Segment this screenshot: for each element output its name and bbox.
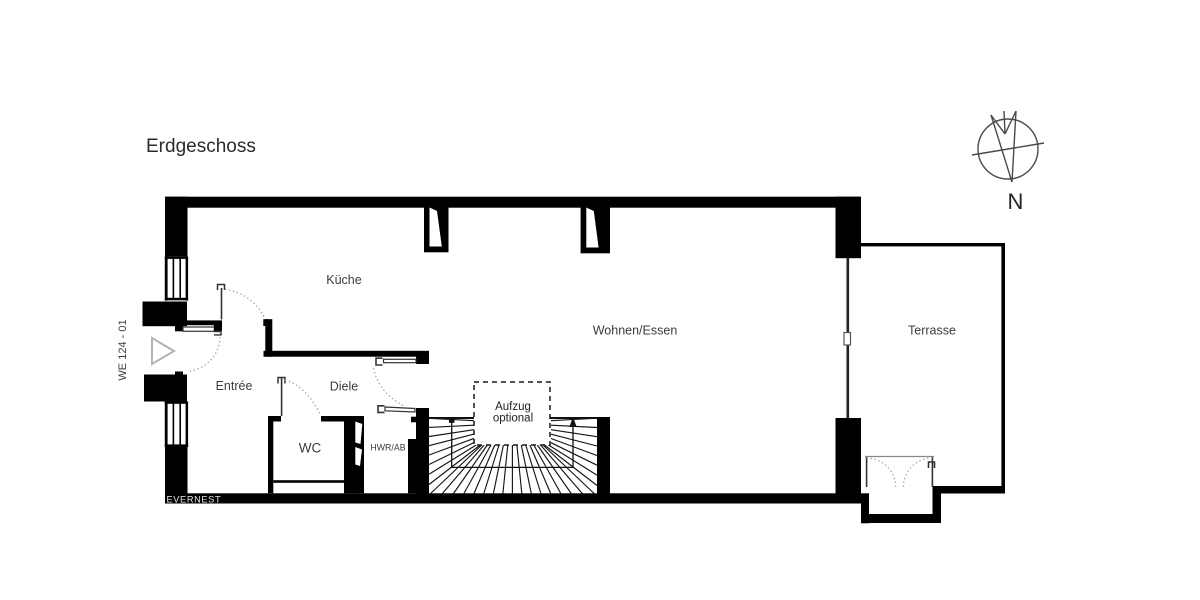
svg-text:WE 124 - 01: WE 124 - 01 (117, 319, 129, 380)
svg-text:optional: optional (493, 413, 533, 425)
svg-text:Entrée: Entrée (216, 379, 253, 393)
svg-text:HWR/AB: HWR/AB (370, 443, 405, 453)
svg-text:EVERNEST: EVERNEST (167, 494, 222, 504)
svg-text:WC: WC (299, 441, 322, 456)
svg-text:Wohnen/Essen: Wohnen/Essen (593, 324, 678, 338)
svg-text:Küche: Küche (326, 273, 361, 287)
svg-text:Aufzug: Aufzug (495, 401, 531, 413)
svg-text:N: N (1008, 189, 1024, 214)
svg-text:Erdgeschoss: Erdgeschoss (146, 136, 256, 157)
svg-text:Diele: Diele (330, 380, 359, 394)
svg-text:Terrasse: Terrasse (908, 324, 956, 338)
